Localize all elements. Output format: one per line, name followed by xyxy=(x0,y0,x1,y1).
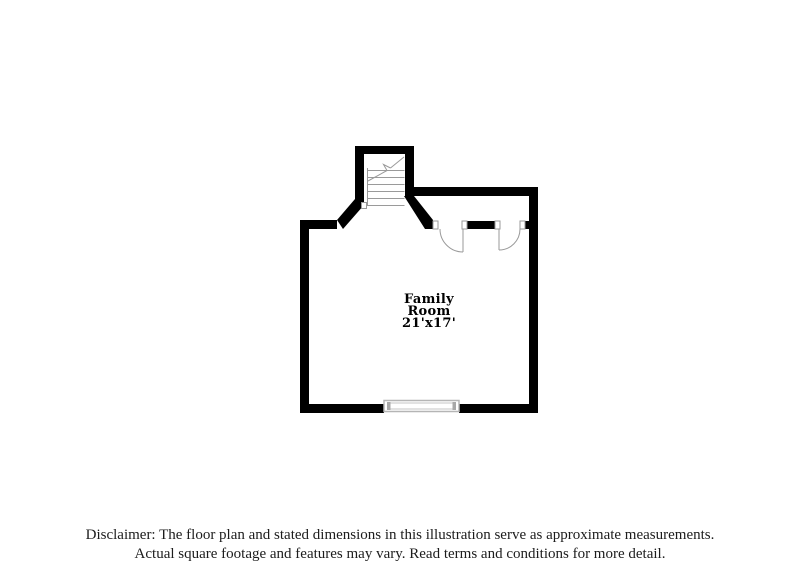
floor-plan-page: Family Room 21'x17' Disclaimer: The floo… xyxy=(0,0,800,582)
door-jamb xyxy=(495,221,500,229)
door-2-swing-arc xyxy=(499,229,520,250)
bottom-wall-right-segment xyxy=(459,404,538,413)
door-wall-right-stub xyxy=(525,221,529,229)
window-outer-frame xyxy=(384,401,459,412)
room-label: Family Room 21'x17' xyxy=(402,292,456,331)
disclaimer-line1: Disclaimer: The floor plan and stated di… xyxy=(0,526,800,545)
window xyxy=(384,401,459,412)
walls xyxy=(300,146,538,413)
floor-plan-drawing: Family Room 21'x17' xyxy=(0,0,800,582)
staircase xyxy=(368,157,405,206)
alcove-left-wall xyxy=(355,146,364,207)
disclaimer-line2: Actual square footage and features may v… xyxy=(0,545,800,564)
right-diagonal-wall xyxy=(404,196,433,229)
stair-break-mark xyxy=(384,165,391,171)
door-1 xyxy=(440,229,463,252)
stair-direction-line xyxy=(368,171,387,182)
room-dimensions: 21'x17' xyxy=(402,316,456,331)
left-wall xyxy=(300,220,309,413)
door-2 xyxy=(499,229,520,250)
door-jamb xyxy=(433,221,438,229)
right-wall xyxy=(529,187,538,413)
door-jambs xyxy=(362,203,526,230)
stair-direction-line xyxy=(391,157,405,168)
door-wall-middle-segment xyxy=(467,221,495,229)
top-left-wall xyxy=(300,220,337,229)
bottom-wall-left-segment xyxy=(300,404,384,413)
door-jamb xyxy=(462,221,467,229)
disclaimer: Disclaimer: The floor plan and stated di… xyxy=(0,526,800,563)
top-right-wall xyxy=(405,187,538,196)
door-jamb xyxy=(520,221,525,229)
window-end-cap xyxy=(387,402,391,410)
stair-base-jamb xyxy=(362,203,367,209)
window-end-cap xyxy=(453,402,457,410)
left-diagonal-wall xyxy=(337,199,364,229)
door-1-swing-arc xyxy=(440,229,463,252)
